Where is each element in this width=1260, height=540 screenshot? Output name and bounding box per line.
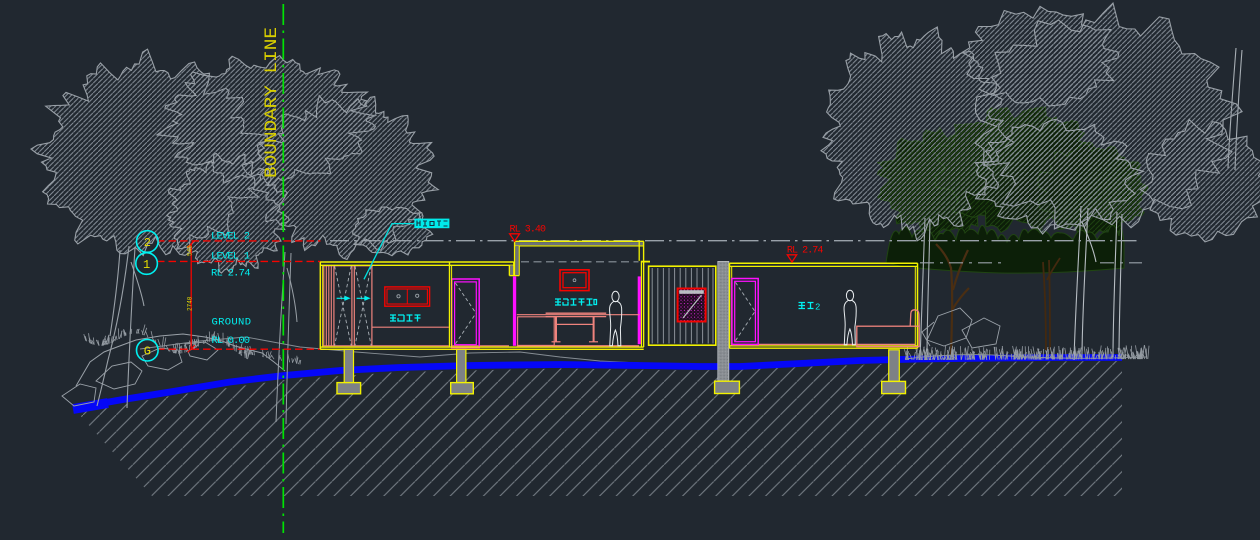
svg-text:2: 2	[815, 303, 820, 313]
svg-text:G: G	[144, 345, 151, 359]
svg-text:2: 2	[144, 236, 151, 250]
svg-text:LEVEL 1: LEVEL 1	[211, 250, 250, 262]
svg-text:1: 1	[143, 258, 150, 272]
svg-text:2740: 2740	[187, 296, 194, 311]
svg-text:GROUND: GROUND	[212, 317, 252, 329]
svg-text:BOUNDARY LINE: BOUNDARY LINE	[263, 27, 282, 178]
svg-text:540: 540	[187, 245, 194, 256]
svg-text:RL 2.74: RL 2.74	[211, 268, 251, 280]
svg-text:RL 0.00: RL 0.00	[212, 335, 251, 347]
svg-text:LEVEL 2: LEVEL 2	[211, 230, 250, 242]
